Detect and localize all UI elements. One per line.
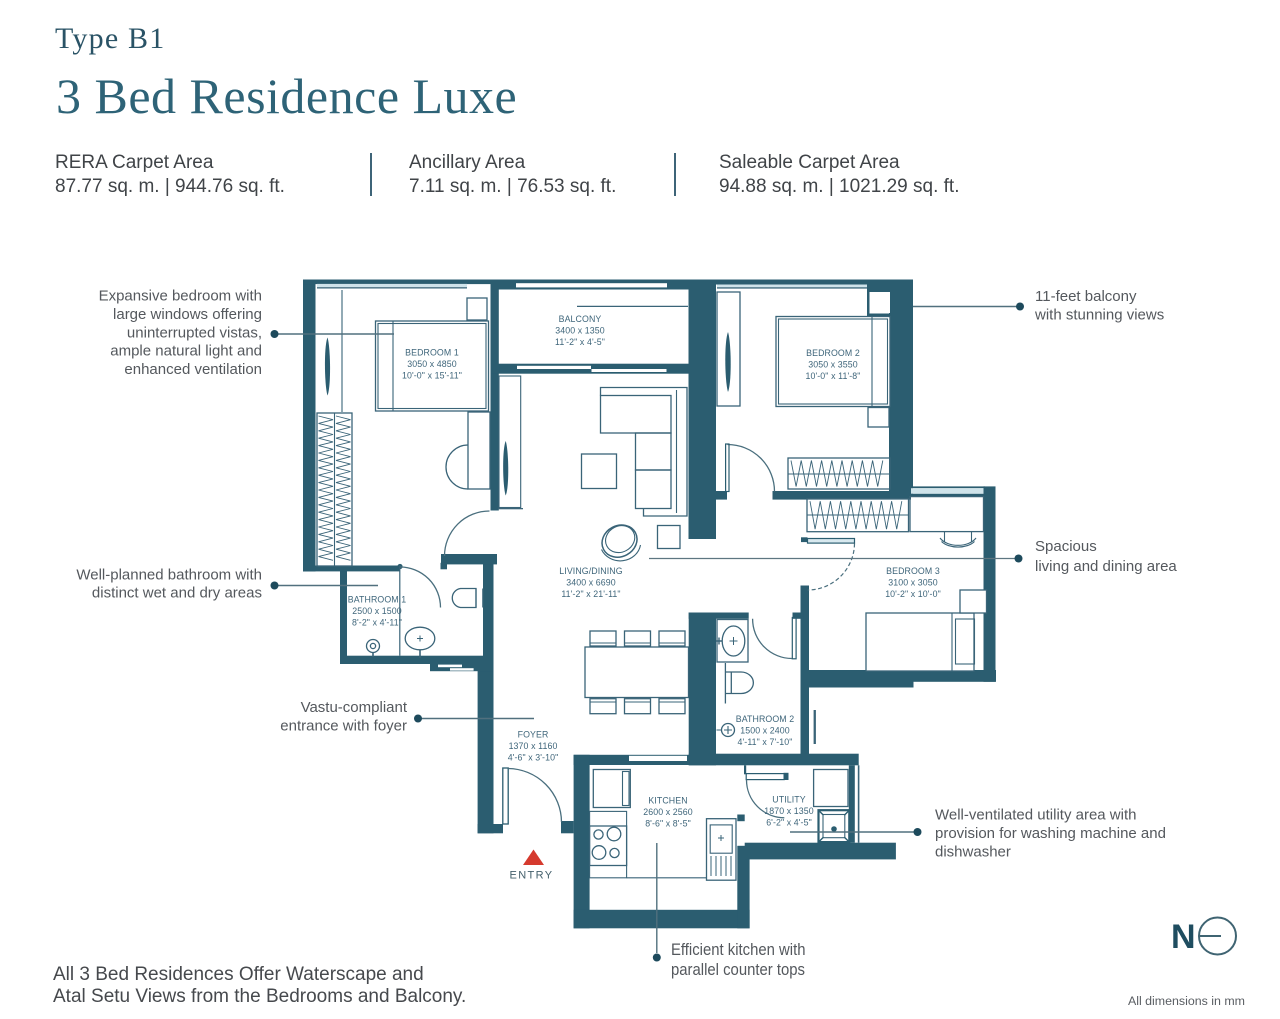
svg-text:Efficient kitchen withparallel: Efficient kitchen withparallel counter t… (671, 941, 806, 979)
svg-text:Well-ventilated utility area w: Well-ventilated utility area withprovisi… (935, 807, 1166, 861)
svg-text:N: N (1171, 918, 1196, 956)
svg-text:All dimensions in mm: All dimensions in mm (1128, 994, 1245, 1008)
svg-text:BATHROOM 21500 x 24004'-11" x: BATHROOM 21500 x 24004'-11" x 7'-10" (736, 714, 795, 747)
svg-text:FOYER1370 x 11604'-6" x 3'-10": FOYER1370 x 11604'-6" x 3'-10" (508, 730, 559, 763)
svg-text:Vastu-compliantentrance with f: Vastu-compliantentrance with foyer (280, 699, 408, 734)
svg-text:KITCHEN2600 x 25608'-6" x 8'-5: KITCHEN2600 x 25608'-6" x 8'-5" (643, 796, 693, 829)
svg-text:ENTRY: ENTRY (509, 870, 553, 882)
svg-text:LIVING/DINING3400 x 669011'-2": LIVING/DINING3400 x 669011'-2" x 21'-11" (559, 566, 622, 599)
svg-text:BATHROOM 12500 x 15008'-2" x 4: BATHROOM 12500 x 15008'-2" x 4'-11" (348, 595, 407, 628)
svg-text:BEDROOM 33100 x 305010'-2" x 1: BEDROOM 33100 x 305010'-2" x 10'-0" (885, 566, 941, 599)
svg-text:11-feet balconywith stunning v: 11-feet balconywith stunning views (1034, 288, 1164, 323)
svg-text:UTILITY1870 x 13506'-2" x 4'-5: UTILITY1870 x 13506'-2" x 4'-5" (764, 795, 814, 828)
svg-text:Expansive bedroom withlarge wi: Expansive bedroom withlarge windows offe… (99, 288, 262, 379)
svg-text:BALCONY3400 x 135011'-2" x 4'-: BALCONY3400 x 135011'-2" x 4'-5" (555, 314, 605, 347)
svg-text:BEDROOM 13050 x 485010'-0" x 1: BEDROOM 13050 x 485010'-0" x 15'-11" (402, 348, 462, 381)
svg-text:Spaciousliving and dining area: Spaciousliving and dining area (1035, 538, 1177, 575)
svg-text:Well-planned bathroom withdist: Well-planned bathroom withdistinct wet a… (76, 566, 262, 601)
svg-text:BEDROOM 23050 x 355010'-0" x 1: BEDROOM 23050 x 355010'-0" x 11'-8" (806, 348, 861, 381)
